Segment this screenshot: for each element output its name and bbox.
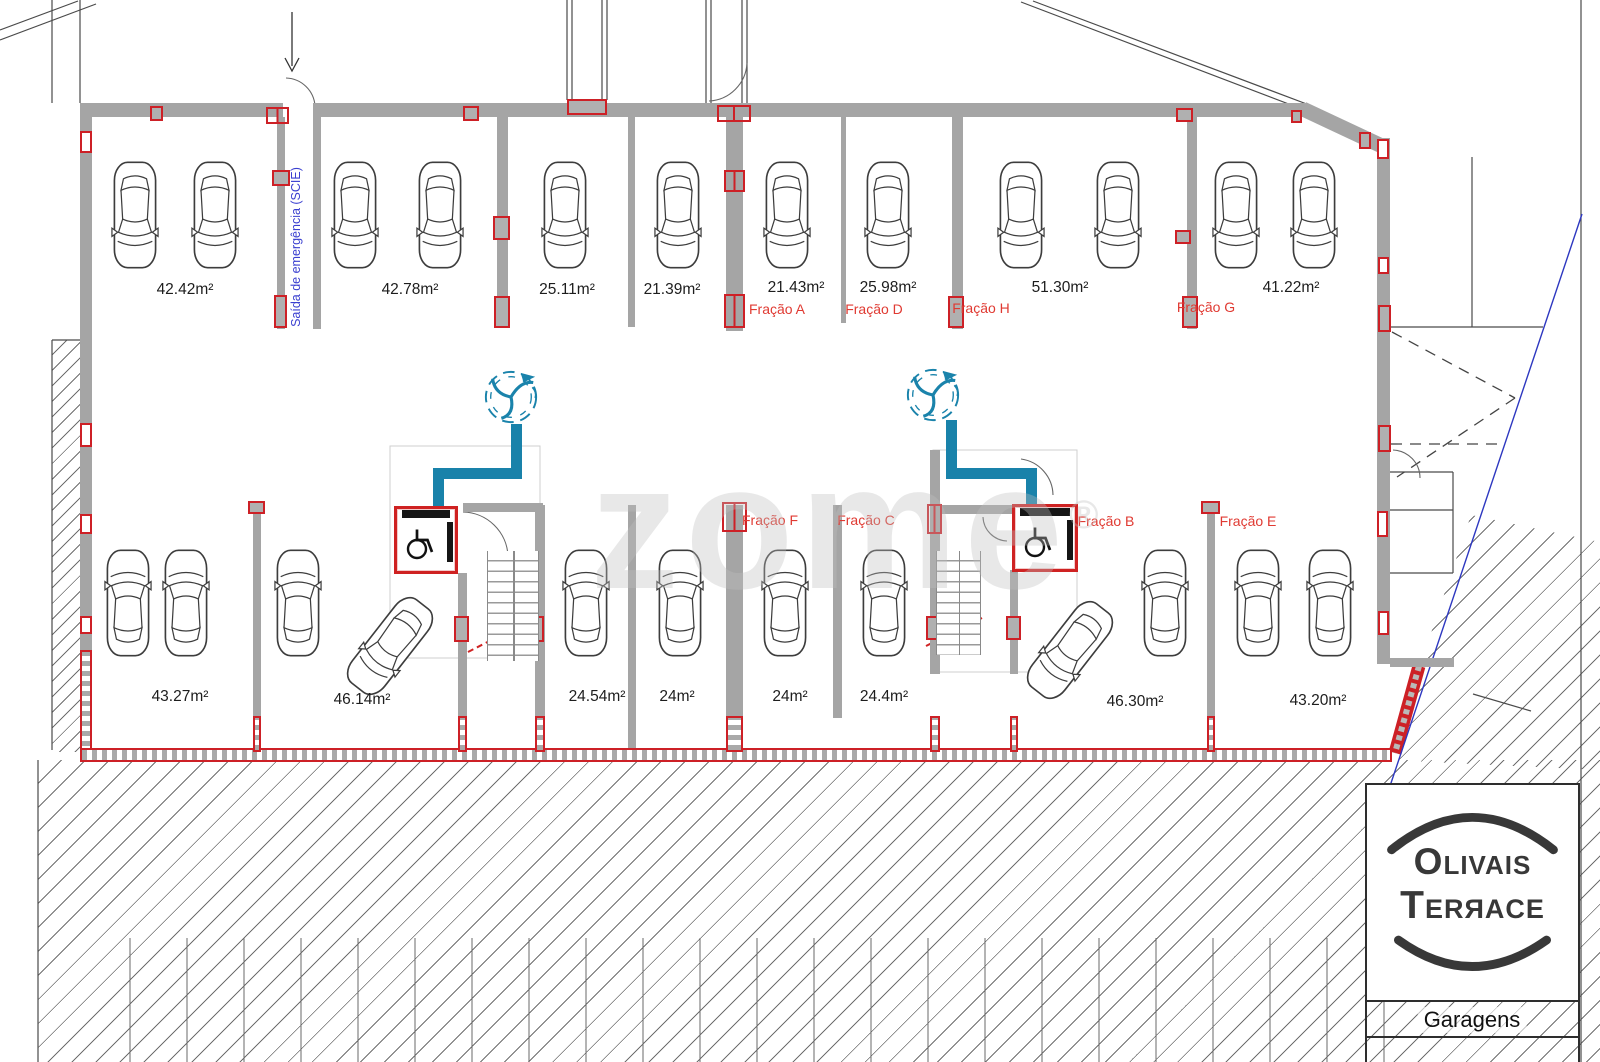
wall-tick — [80, 616, 92, 634]
logo-line1: Olivais — [1367, 841, 1578, 883]
column-marker — [1359, 132, 1371, 149]
fraction-label: Fração G — [1177, 299, 1235, 315]
area-label: 21.39m² — [644, 281, 701, 299]
wall-tick — [80, 131, 92, 153]
fraction-label: Fração H — [952, 300, 1010, 316]
car — [327, 150, 383, 280]
wall-tick — [1377, 139, 1389, 159]
post-cap — [248, 501, 265, 514]
wall-tick — [1378, 257, 1389, 274]
wall-tick — [1378, 611, 1389, 635]
car — [1302, 538, 1358, 668]
wall-marker — [1378, 425, 1391, 452]
logo-box: Olivais Terяace — [1365, 783, 1580, 1002]
vent-duct — [433, 468, 522, 479]
wall-marker — [1175, 230, 1191, 244]
car — [993, 150, 1049, 280]
wall-tick — [80, 514, 92, 534]
post-cap — [1201, 501, 1220, 514]
area-label: 42.42m² — [157, 281, 214, 299]
wall-marker — [274, 295, 287, 328]
wall-corridor-right — [313, 117, 321, 329]
area-label: 43.20m² — [1290, 692, 1347, 710]
area-label: 46.30m² — [1107, 693, 1164, 711]
fire-wall-left — [80, 650, 92, 758]
fire-wall-stub — [458, 716, 467, 752]
column-marker — [1176, 108, 1193, 122]
elevator-shaft — [394, 506, 458, 574]
car — [537, 150, 593, 280]
wall-left — [80, 103, 92, 653]
fire-wall-stub — [930, 716, 940, 752]
core1-top-wall — [463, 503, 543, 512]
car — [1230, 538, 1286, 668]
wall-top-left — [80, 103, 283, 117]
ventilation-fan-icon — [904, 366, 962, 424]
area-label: 24m² — [659, 688, 694, 706]
wall-marker — [272, 170, 290, 186]
logo-line2: Terяace — [1367, 884, 1578, 928]
wall-tick — [80, 423, 92, 447]
column-marker — [1291, 110, 1302, 123]
wheelchair-lift-icon — [402, 521, 438, 565]
wall-tick — [1377, 511, 1388, 537]
door-frame — [717, 105, 751, 122]
wall-right — [1377, 138, 1390, 664]
wall-marker — [493, 216, 510, 240]
area-label: 21.43m² — [768, 279, 825, 297]
area-label: 51.30m² — [1032, 279, 1089, 297]
fraction-label: Fração A — [749, 301, 805, 317]
car — [1090, 150, 1146, 280]
fire-wall-stub — [535, 716, 545, 752]
door-frame — [724, 294, 745, 328]
car — [100, 538, 156, 668]
fire-wall-stub — [726, 716, 743, 752]
area-label: 24.4m² — [860, 688, 908, 706]
wall-divider — [628, 117, 635, 327]
fire-wall-stub — [253, 716, 261, 752]
car — [270, 538, 326, 668]
watermark: zome® — [590, 438, 1104, 616]
staircase — [487, 551, 539, 661]
watermark-text: zome — [590, 427, 1069, 626]
wall-marker — [494, 296, 510, 328]
wall-marker — [1378, 305, 1391, 332]
car — [107, 150, 163, 280]
area-label: 41.22m² — [1263, 279, 1320, 297]
elevator-machinery — [402, 510, 450, 518]
area-label: 24m² — [772, 688, 807, 706]
fraction-label: Fração D — [845, 301, 903, 317]
wall-right-stub — [1390, 658, 1454, 667]
area-label: 25.11m² — [539, 281, 595, 299]
car — [759, 150, 815, 280]
emergency-exit-label: Saída de emergência (SCIE) — [289, 162, 305, 332]
car — [1137, 538, 1193, 668]
area-label: 46.14m² — [334, 691, 391, 709]
area-label: 24.54m² — [569, 688, 626, 706]
elevator-rail — [447, 522, 453, 562]
core1-side-wall — [458, 573, 467, 717]
title-band-lower — [1365, 1038, 1580, 1062]
post — [1207, 505, 1215, 717]
area-label: 42.78m² — [382, 281, 439, 299]
wall-divider — [497, 117, 508, 313]
column-marker — [463, 106, 479, 121]
garage-floor-plan: 42.42m² 42.78m² 25.11m² 21.39m² 21.43m² … — [0, 0, 1600, 1062]
fire-wall-stub — [1207, 716, 1215, 752]
car — [1208, 150, 1264, 280]
car — [187, 150, 243, 280]
car — [650, 150, 706, 280]
car — [860, 150, 916, 280]
wall-marker — [454, 616, 469, 642]
post — [253, 507, 261, 717]
fire-wall-stub — [1010, 716, 1018, 752]
car — [1286, 150, 1342, 280]
column-marker — [150, 106, 163, 121]
car — [412, 150, 468, 280]
fraction-label: Fração E — [1220, 513, 1277, 529]
area-label: 25.98m² — [860, 279, 917, 297]
column-marker — [567, 99, 607, 115]
door-frame — [724, 170, 745, 192]
door-frame — [266, 107, 289, 124]
sheet-caption: Garagens — [1418, 1007, 1527, 1033]
area-label: 43.27m² — [152, 688, 209, 706]
car — [158, 538, 214, 668]
watermark-reg: ® — [1069, 493, 1104, 537]
wall-divider — [841, 117, 846, 323]
ventilation-fan-icon — [482, 368, 540, 426]
